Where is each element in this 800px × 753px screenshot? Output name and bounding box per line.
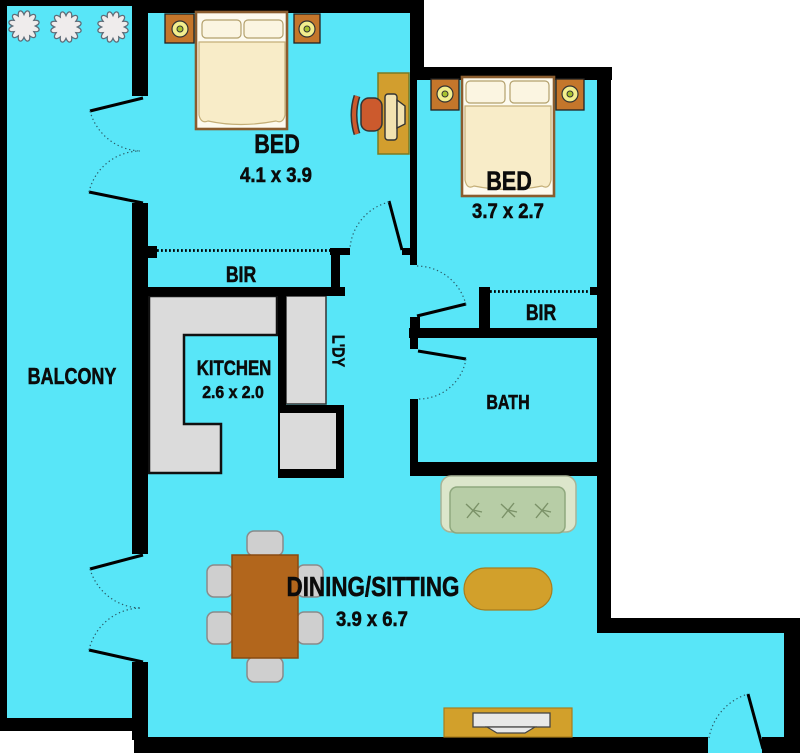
svg-text:BALCONY: BALCONY [28, 364, 117, 390]
svg-text:BIR: BIR [526, 301, 556, 325]
svg-text:BATH: BATH [486, 391, 529, 413]
svg-text:KITCHEN: KITCHEN [197, 357, 272, 380]
svg-text:2.6 x 2.0: 2.6 x 2.0 [202, 382, 264, 402]
svg-text:3.7 x 2.7: 3.7 x 2.7 [472, 200, 544, 223]
svg-text:4.1 x 3.9: 4.1 x 3.9 [240, 164, 312, 187]
svg-text:DINING/SITTING: DINING/SITTING [287, 572, 460, 603]
svg-text:BED: BED [486, 167, 532, 197]
svg-text:BIR: BIR [226, 263, 256, 287]
svg-text:BED: BED [254, 130, 300, 160]
svg-text:L'DY: L'DY [328, 335, 348, 367]
svg-text:3.9 x 6.7: 3.9 x 6.7 [336, 608, 408, 631]
